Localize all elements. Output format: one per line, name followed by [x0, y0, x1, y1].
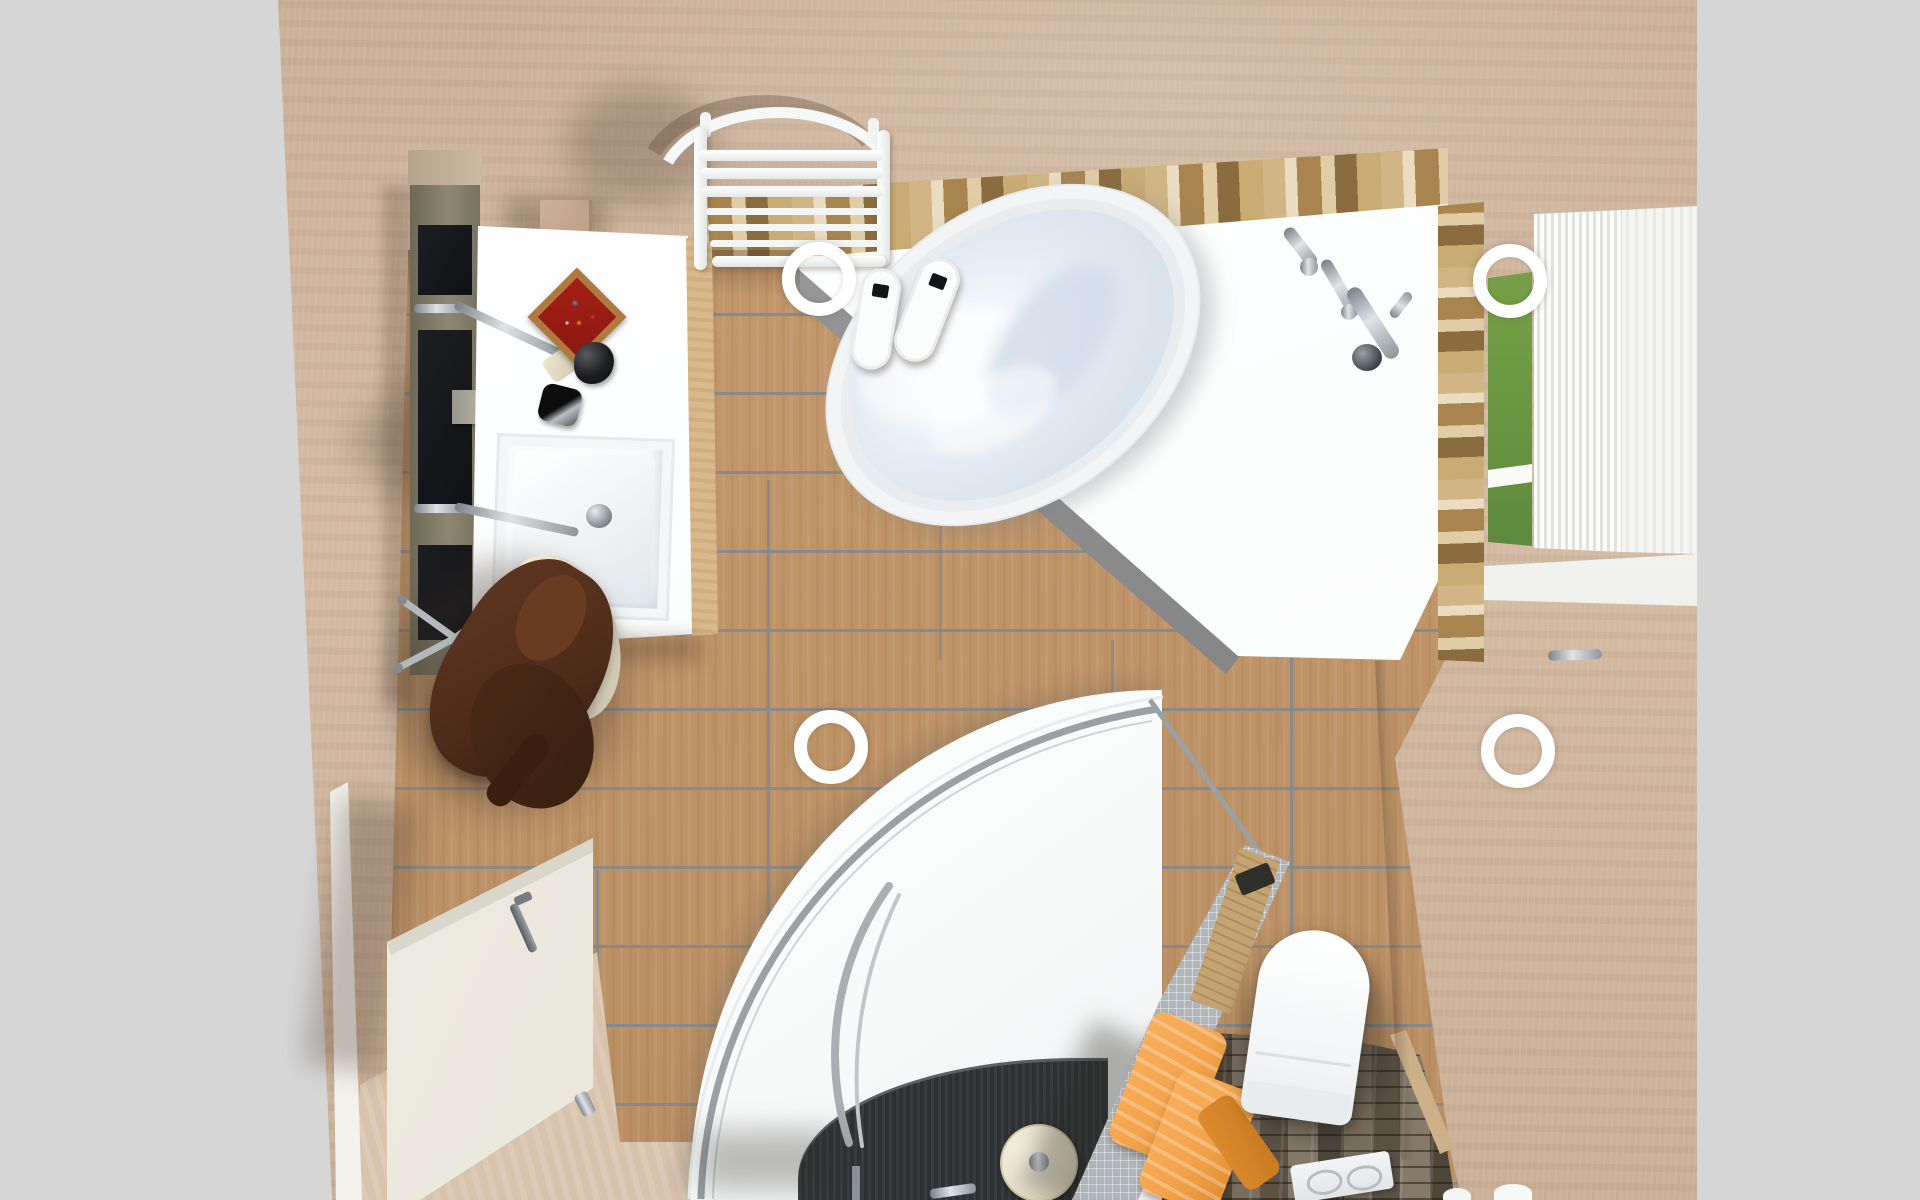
flush-button	[1305, 1167, 1344, 1197]
shower-door-post	[852, 1166, 860, 1200]
ceiling-spotlight-ring	[1481, 714, 1555, 788]
slipper-label	[928, 273, 948, 291]
bath-spout-knob	[1300, 258, 1318, 276]
towel-radiator-bar	[698, 150, 884, 161]
hand-shower-head	[1352, 344, 1382, 371]
basin-faucet-head	[586, 504, 612, 528]
slipper-label	[872, 283, 890, 298]
ceiling-spotlight-ring	[782, 242, 856, 316]
shower-head-hub	[1029, 1152, 1049, 1172]
towel-radiator-rung	[706, 208, 884, 215]
water-swirl	[915, 347, 1072, 473]
towel-radiator-bar	[702, 186, 884, 197]
towel-radiator-rung	[708, 224, 884, 231]
shelf-niche	[418, 225, 472, 295]
fixture-top-sliver	[1443, 1188, 1471, 1200]
toilet-base	[1244, 1080, 1351, 1120]
toilet-seat-seam	[1255, 1051, 1350, 1067]
ceiling-spotlight-ring	[1473, 244, 1547, 318]
fixture-top-sliver	[1494, 1184, 1532, 1200]
flush-button	[1345, 1163, 1384, 1193]
towel-radiator-bar	[700, 168, 884, 179]
rain-shower-head	[1000, 1124, 1078, 1200]
vanity-column-cap	[408, 150, 482, 190]
render-viewport	[0, 0, 1920, 1200]
ceiling-spotlight-ring	[794, 710, 868, 784]
window-handle	[1548, 649, 1602, 661]
water-swirl	[962, 241, 1144, 438]
towel-radiator-rung	[710, 240, 884, 247]
